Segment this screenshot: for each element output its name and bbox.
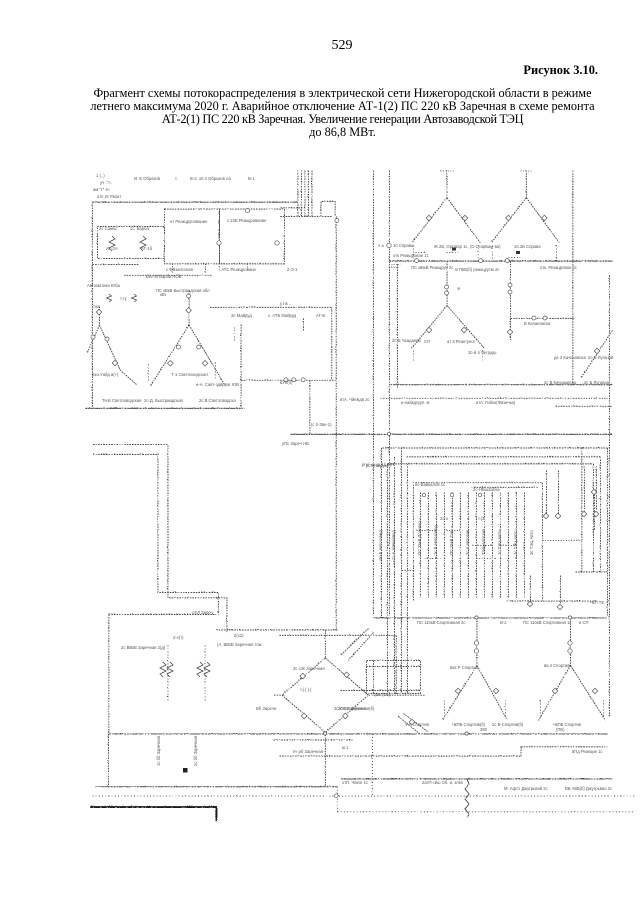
svg-text:10.2Б Справа: 10.2Б Справа xyxy=(514,244,541,249)
svg-text:1с. Барба: 1с. Барба xyxy=(130,226,149,231)
svg-text:с 22Б Реакцрование: с 22Б Реакцрование xyxy=(227,218,267,223)
svg-text:Зс Майруд: Зс Майруд xyxy=(231,313,252,318)
svg-text:ПС 35кВ Доскино: ПС 35кВ Доскино xyxy=(417,521,422,555)
svg-text:2с ТЭЦ Авто: 2с ТЭЦ Авто xyxy=(513,530,518,555)
svg-text:2с бб Заречная: 2с бб Заречная xyxy=(193,736,198,766)
svg-text:отП. Чйео! 1с: отП. Чйео! 1с xyxy=(342,780,368,785)
svg-text:Зс ТЭЦ Авто: Зс ТЭЦ Авто xyxy=(529,530,534,555)
svg-text:втА. ЧйеБдв 2с: втА. ЧйеБдв 2с xyxy=(340,397,370,402)
svg-text:Т-1 Светлозодская: Т-1 Светлозодская xyxy=(171,372,208,377)
svg-text:и СП: и СП xyxy=(579,620,589,625)
svg-text:1с А Автозавод: 1с А Автозавод xyxy=(391,530,396,560)
svg-text:ж: ж xyxy=(456,287,461,290)
svg-text:де 3 Качановска: де 3 Качановска xyxy=(554,355,586,360)
svg-text:т.: т. xyxy=(175,176,178,181)
svg-text:Ж 2Б, ОргШвр 1с, (О СтарБам-ва: Ж 2Б, ОргШвр 1с, (О СтарБам-ва) xyxy=(434,244,501,249)
svg-text:2 О-1: 2 О-1 xyxy=(287,267,298,272)
svg-text:2с ОВ Заречная(б): 2с ОВ Заречная(б) xyxy=(338,706,375,711)
svg-text:2с Б Луговая: 2с Б Луговая xyxy=(584,380,609,385)
svg-text:нт Реакцрунование: нт Реакцрунование xyxy=(170,219,208,224)
svg-text:ам "т" зч: ам "т" зч xyxy=(93,187,109,192)
svg-text:пч рб Заречная: пч рб Заречная xyxy=(293,749,323,754)
svg-text:380: 380 xyxy=(480,727,488,732)
svg-text:АТ-2А: АТ-2А xyxy=(106,246,118,251)
svg-text:ПС мВкВ Реакцрун 2с: ПС мВкВ Реакцрун 2с xyxy=(411,265,453,270)
svg-text:отк Реакцрован 1с: отк Реакцрован 1с xyxy=(393,253,429,258)
svg-text:ЧкП ТЕ: ЧкП ТЕ xyxy=(590,600,604,605)
svg-text:2с Самос: 2с Самос xyxy=(99,226,117,231)
svg-text:м 1.: м 1. xyxy=(342,745,350,750)
svg-text:АТ-Б: АТ-Б xyxy=(316,313,325,318)
svg-text:уПс Зареч НБ: уПс Зареч НБ xyxy=(282,441,309,446)
svg-text:(ПБ): (ПБ) xyxy=(556,727,565,732)
svg-text:вПд Реакция 1с: вПд Реакция 1с xyxy=(572,749,603,754)
svg-text:и-А. Савт-здйрлаг ЮВ: и-А. Савт-здйрлаг ЮВ xyxy=(196,382,239,387)
svg-text:2с В Качановска: 2с В Качановска xyxy=(544,380,577,385)
svg-text:2-х(т): 2-х(т) xyxy=(173,635,184,640)
svg-text:т.(2: т.(2 xyxy=(478,516,485,521)
svg-text:И. Е Образов: И. Е Образов xyxy=(134,176,161,181)
svg-text:кВт: кВт xyxy=(160,292,166,297)
svg-text:Бел М Барба НОВ: Бел М Барба НОВ xyxy=(146,274,182,279)
svg-text:ПС 110кВ Спортивная 2с: ПС 110кВ Спортивная 2с xyxy=(417,620,466,625)
svg-text:В-2. 10.2 Образов ла: В-2. 10.2 Образов ла xyxy=(190,176,231,181)
svg-text:М. Афт1 Джугрьвай 2с: М. Афт1 Джугрьвай 2с xyxy=(504,786,548,791)
svg-text:вУб(б): вУб(б) xyxy=(280,380,293,385)
svg-text:с. АТБ Майруд: с. АТБ Майруд xyxy=(268,313,297,318)
svg-text:Зс-й 4 Чегрудь: Зс-й 4 Чегрудь xyxy=(468,350,497,355)
svg-text:2с-Б Чаадаева: 2с-Б Чаадаева xyxy=(392,338,421,343)
svg-text:1с ТЭЦ Авто: 1с ТЭЦ Авто xyxy=(497,530,502,555)
svg-text:;.АТС Реакцрованн: ;.АТС Реакцрованн xyxy=(219,267,257,272)
svg-text:т.(.(.(.(: т.(.(.(.( xyxy=(300,687,312,692)
svg-text:ТЭЦ-Автозав: ТЭЦ-Автозав xyxy=(481,529,486,555)
svg-text:пгПКВ(б) реакцрутм 2с: пгПКВ(б) реакцрутм 2с xyxy=(455,267,499,272)
svg-text:отк. Реакцрован 2с: отк. Реакцрован 2с xyxy=(540,265,577,270)
svg-text:2с-х: 2с-х xyxy=(440,516,449,521)
svg-text:рста пирум: рста пирум xyxy=(366,463,388,468)
svg-text:1 (..): 1 (..) xyxy=(96,173,105,178)
svg-text:В-2: В-2 xyxy=(500,620,507,625)
svg-text:2с-НВшЗабча: 2с-НВшЗабча xyxy=(473,487,500,492)
svg-text:2с А Автозав: 2с А Автозав xyxy=(465,529,470,555)
svg-text:ва 4 Спортив: ва 4 Спортив xyxy=(544,663,570,668)
svg-text:уч .">.: уч .">. xyxy=(100,180,112,185)
svg-text:Зс 1Ж Заречная: Зс 1Ж Заречная xyxy=(293,666,325,671)
svg-text:(вч (Ов): (вч (Ов) xyxy=(375,692,391,697)
svg-text:Автоматика Юба: Автоматика Юба xyxy=(87,283,120,288)
svg-text:ч а: ч а xyxy=(378,243,384,248)
svg-text:СП: СП xyxy=(424,339,430,344)
svg-text:В Качановска: В Качановска xyxy=(524,321,551,326)
svg-text:и-еайкдгруп. м: и-еайкдгруп. м xyxy=(401,400,430,405)
svg-text:В-1: В-1 xyxy=(248,176,255,181)
svg-text:(с 2-Зве-1): (с 2-Зве-1) xyxy=(311,422,332,427)
svg-text:(А. ВВкВ Заречная тож: (А. ВВкВ Заречная тож xyxy=(217,642,262,647)
svg-text:10 Справа: 10 Справа xyxy=(393,243,414,248)
svg-text:т.ту: т.ту xyxy=(120,296,128,301)
svg-text:2с Б Автозавод: 2с Б Автозавод xyxy=(378,530,383,560)
svg-text:Без.Уабд.а(+): Без.Уабд.а(+) xyxy=(92,372,119,377)
svg-text:2с-Д. Быстриадская: 2с-Д. Быстриадская xyxy=(144,398,183,403)
svg-text:АТ-1б: АТ-1б xyxy=(141,246,153,251)
svg-text:нс-Вайкалов 1с: нс-Вайкалов 1с xyxy=(415,482,445,487)
svg-text:атп 2с Реакт: атп 2с Реакт xyxy=(97,194,121,199)
svg-text:лХЛ Зареч: лХЛ Зареч xyxy=(192,610,213,615)
svg-text:ПС 35кВ Гор.: ПС 35кВ Гор. xyxy=(449,530,454,555)
svg-text:с ФВзанссная: с ФВзанссная xyxy=(166,267,193,272)
svg-text:ч-А Спортив: ч-А Спортив xyxy=(405,722,430,727)
svg-text:1с Б Автозавод: 1с Б Автозавод xyxy=(433,525,438,555)
svg-text:2(x2): 2(x2) xyxy=(234,633,244,638)
svg-text:1с бб Заречная: 1с бб Заречная xyxy=(156,736,161,766)
svg-text:2с-Ь Луганов: 2с-Ь Луганов xyxy=(588,355,614,360)
svg-text:2с Б-Спортив(б): 2с Б-Спортив(б) xyxy=(492,722,524,727)
svg-text:2с В Светловодска: 2с В Светловодска xyxy=(199,398,236,403)
svg-text:у.тж ..: у.тж .. xyxy=(280,301,291,306)
svg-text:тжт: тжт xyxy=(93,304,100,309)
svg-text:Вб Заречн: Вб Заречн xyxy=(256,706,277,711)
svg-text:ВБ.ЧйБ(б) Джугрьван 2с: ВБ.ЧйБ(б) Джугрьван 2с xyxy=(565,786,612,791)
svg-text:ПС 110кВ Спортивная 1с: ПС 110кВ Спортивная 1с xyxy=(523,620,572,625)
svg-text:вка Р Спортив: вка Р Спортив xyxy=(450,665,479,670)
svg-text:2атП сйш Об. и, элек: 2атП сйш Об. и, элек xyxy=(422,780,463,785)
svg-text:Тя-Б Светловодская: Тя-Б Светловодская xyxy=(102,398,141,403)
svg-text:2с ВВкВ Заречная 2(д): 2с ВВкВ Заречная 2(д) xyxy=(121,645,166,650)
svg-text:ат 3 Реактуног: ат 3 Реактуног xyxy=(447,339,476,344)
svg-text:атА. Гибко(Физичка): атА. Гибко(Физичка) xyxy=(476,400,516,405)
